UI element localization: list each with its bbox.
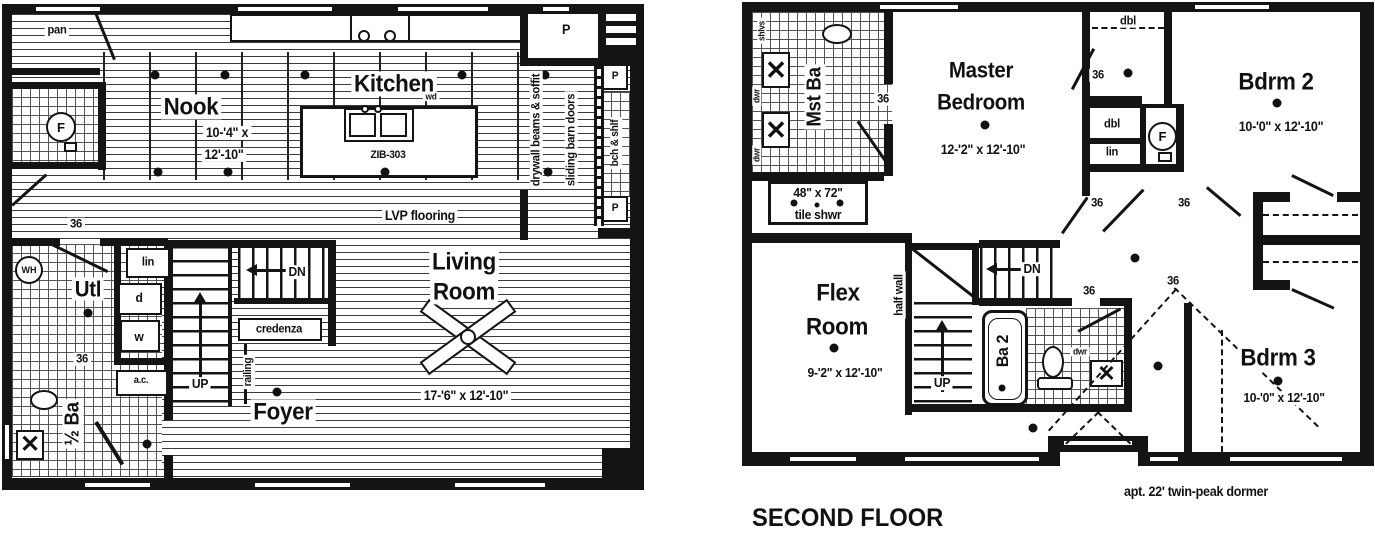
- railing-label: railing: [243, 355, 255, 389]
- room-label-living: Room: [430, 279, 498, 304]
- shower-drain-dot: [791, 200, 798, 207]
- door-width-label: 36: [73, 353, 90, 366]
- window: [255, 480, 350, 490]
- wall: [742, 233, 912, 243]
- toilet: [822, 24, 852, 44]
- door-width-label: 36: [1164, 275, 1181, 288]
- drawers-label: dwr: [752, 145, 761, 165]
- window: [1150, 454, 1178, 464]
- vanity-cabinet: ✕: [762, 52, 790, 88]
- wall: [164, 455, 173, 478]
- wall: [2, 82, 106, 89]
- wall: [598, 4, 644, 62]
- ceiling-light-dot: [273, 388, 282, 397]
- burner: [358, 30, 370, 42]
- window: [2, 425, 12, 459]
- stairs-up-label: UP: [189, 377, 211, 391]
- window: [85, 480, 150, 490]
- shelf-slot: [606, 26, 636, 33]
- wall: [114, 358, 172, 365]
- vanity-cabinet: ✕: [762, 112, 790, 148]
- furnace-symbol: F: [1148, 122, 1177, 151]
- ac-label: a.c.: [131, 376, 151, 387]
- closet-dbl-label: dbl: [1117, 15, 1138, 28]
- window: [238, 4, 332, 14]
- window: [455, 480, 545, 490]
- room-label-master-bath: Mst Ba: [805, 65, 826, 130]
- room-label-utility: Utl: [72, 277, 104, 300]
- ceiling-light-dot: [221, 71, 230, 80]
- room-label-flex: Room: [803, 314, 871, 339]
- ceiling-light-dot: [154, 168, 163, 177]
- dishwasher-label: wd: [423, 92, 440, 101]
- nook-dims: 12'-10": [202, 148, 247, 162]
- shelf-slot: [606, 38, 636, 45]
- ceiling-light-dot: [84, 309, 93, 318]
- door-width-label: 36: [1088, 197, 1105, 210]
- shower-type-label: tile shwr: [792, 208, 844, 222]
- ceiling-light-dot: [224, 168, 233, 177]
- stairs-down-label: DN: [286, 265, 308, 279]
- toilet: [30, 390, 58, 410]
- room-label-bath2: Ba 2: [994, 332, 1012, 370]
- door-width-label: 36: [1080, 285, 1097, 298]
- master-dims: 12-'2" x 12'-10": [938, 143, 1028, 157]
- wall: [234, 298, 332, 304]
- cabinet-x-icon: ✕: [764, 114, 788, 146]
- stair-stringer: [911, 247, 975, 298]
- room-label-flex: Flex: [813, 280, 862, 305]
- bench-shelf-note: bch & shlf: [610, 117, 622, 169]
- door-swing: [1291, 288, 1334, 309]
- wall: [1082, 138, 1142, 144]
- window: [36, 4, 100, 14]
- dormer-gap: [1060, 452, 1138, 466]
- wall: [1140, 104, 1146, 170]
- burner: [384, 30, 396, 42]
- wall: [328, 240, 336, 346]
- ceiling-break-line: [1221, 330, 1223, 452]
- pedestal-sink: ✕: [16, 430, 44, 460]
- ceiling-light-dot: [458, 71, 467, 80]
- room-label-living: Living: [429, 249, 499, 274]
- ceiling-light-dot: [1029, 424, 1038, 433]
- post-label: P: [609, 71, 621, 83]
- wall: [164, 240, 334, 248]
- room-label-master: Bedroom: [934, 90, 1027, 113]
- ceiling-light-dot: [1273, 99, 1282, 108]
- ceiling-light-dot: [1154, 362, 1163, 371]
- sink-basin: [349, 113, 376, 137]
- wall: [2, 162, 106, 169]
- stair-arrow-line: [199, 302, 202, 378]
- credenza-label: credenza: [253, 323, 305, 336]
- room-label-bdrm3: Bdrm 3: [1238, 345, 1319, 370]
- window: [543, 4, 569, 14]
- closet-linen-label: lin: [1103, 146, 1121, 159]
- stair-arrow-left-icon: [246, 264, 257, 276]
- bdrm3-dims: 10-'0" x 12'-10": [1241, 391, 1328, 405]
- dryer-label: d: [133, 291, 146, 305]
- wall: [2, 4, 12, 490]
- floor-plan-canvas: F WH ✕: [0, 0, 1375, 542]
- island-model-label: ZIB-303: [368, 150, 409, 162]
- cabinet-x-icon: ✕: [764, 54, 788, 86]
- window: [398, 4, 488, 14]
- wall: [520, 190, 528, 240]
- closet-rod: [1263, 214, 1358, 216]
- wall: [742, 172, 884, 181]
- toilet: [1042, 346, 1064, 378]
- stair-arrow-left-icon: [986, 263, 997, 275]
- ceiling-light-dot: [981, 121, 990, 130]
- ceiling-light-dot: [544, 168, 553, 177]
- flooring-note: LVP flooring: [382, 209, 458, 223]
- wall: [100, 238, 168, 246]
- pantry-room-label: P: [559, 23, 573, 37]
- bdrm2-dims: 10-'0" x 12'-10": [1236, 120, 1326, 134]
- shelves-label: shlvs: [757, 18, 766, 44]
- wall: [979, 298, 1072, 306]
- furnace-vent: [1158, 152, 1172, 162]
- bath-shelf: [1037, 377, 1073, 390]
- wall: [598, 228, 644, 238]
- ceiling-light-dot: [830, 344, 839, 353]
- wall: [1082, 164, 1184, 172]
- window: [1064, 438, 1132, 448]
- tile-floor: [1026, 308, 1126, 406]
- washer-label: w: [132, 330, 147, 344]
- wall: [1082, 96, 1142, 104]
- room-label-bdrm2: Bdrm 2: [1236, 69, 1317, 94]
- nook-dims: 10-'4" x: [203, 126, 251, 140]
- room-label-foyer: Foyer: [251, 399, 316, 424]
- door-width-label: 36: [1089, 69, 1106, 82]
- shower-size-label: 48" x 72": [791, 186, 846, 200]
- barn-doors-note: sliding barn doors: [565, 91, 578, 189]
- ceiling-light-dot: [1274, 377, 1283, 386]
- room-label-nook: Nook: [161, 94, 221, 119]
- furnace-vent: [64, 142, 77, 152]
- door-width-label: 36: [67, 218, 84, 231]
- beams-note: drywall beams & soffit: [530, 71, 543, 189]
- window: [1230, 454, 1342, 464]
- drawers-label: dwr: [752, 86, 761, 106]
- door-swing: [1291, 174, 1333, 196]
- sink-basin: [380, 113, 407, 137]
- stair-arrow-up-icon: [935, 320, 949, 332]
- shelf-slot: [606, 14, 636, 21]
- ceiling-light-dot: [143, 440, 152, 449]
- wall: [98, 82, 106, 170]
- door-width-label: 36: [874, 93, 891, 106]
- wall: [1253, 280, 1290, 290]
- wall: [602, 448, 644, 488]
- plan-title: SECOND FLOOR: [752, 504, 943, 533]
- wall: [1082, 104, 1090, 170]
- wall: [1337, 192, 1362, 202]
- cabinet-x-icon: ✕: [18, 432, 42, 458]
- stairs-up-label: UP: [931, 376, 953, 390]
- ceiling-light-dot: [1131, 254, 1140, 263]
- stair-arrow-up-icon: [193, 292, 207, 304]
- wall: [1184, 303, 1192, 455]
- pantry-label: pan: [45, 24, 70, 37]
- living-dims: 17-'6" x 12'-10": [421, 389, 511, 403]
- wall: [1124, 298, 1132, 412]
- stair-rail-wall: [228, 246, 232, 406]
- door-width-label: 36: [1175, 197, 1192, 210]
- ceiling-light-dot: [1124, 69, 1133, 78]
- furnace-symbol: F: [46, 112, 76, 142]
- wall: [1082, 104, 1184, 108]
- room-label-half-bath: ½ Ba: [63, 400, 84, 449]
- wall: [1176, 104, 1184, 170]
- door-swing: [1061, 196, 1088, 233]
- post-label: P: [609, 203, 621, 215]
- dormer-note: apt. 22' twin-peak dormer: [1121, 485, 1271, 499]
- half-wall-label: half wall: [893, 271, 906, 318]
- ceiling-light-dot: [151, 71, 160, 80]
- wall: [1164, 12, 1172, 104]
- door-swing: [1102, 189, 1144, 232]
- wall: [742, 2, 1372, 12]
- closet-dbl-label: dbl: [1101, 118, 1122, 131]
- flex-dims: 9-'2" x 12'-10": [805, 366, 885, 380]
- water-heater-symbol: WH: [15, 256, 43, 284]
- faucet: [361, 105, 369, 113]
- window: [1195, 2, 1269, 12]
- vanity-drawers-label: dwr: [1070, 347, 1090, 356]
- wall: [1253, 235, 1362, 245]
- window: [790, 454, 856, 464]
- wall: [1360, 2, 1374, 466]
- door-swing: [1206, 186, 1241, 216]
- wall: [979, 240, 1060, 248]
- linen-label: lin: [139, 256, 157, 269]
- window: [880, 2, 958, 12]
- window: [905, 454, 1039, 464]
- ceiling-light-dot: [301, 71, 310, 80]
- wall: [884, 12, 893, 84]
- room-label-master: Master: [946, 58, 1016, 81]
- shower-drain-dot: [837, 200, 844, 207]
- ceiling-fan-hub: [460, 329, 476, 345]
- faucet: [374, 105, 382, 113]
- closet-rod: [1263, 261, 1358, 263]
- stairs-down-label: DN: [1021, 262, 1043, 276]
- tub-drain-dot: [999, 385, 1006, 392]
- half-wall: [905, 243, 912, 415]
- ceiling-light-dot: [381, 168, 390, 177]
- wall: [2, 68, 100, 75]
- wall: [630, 4, 644, 490]
